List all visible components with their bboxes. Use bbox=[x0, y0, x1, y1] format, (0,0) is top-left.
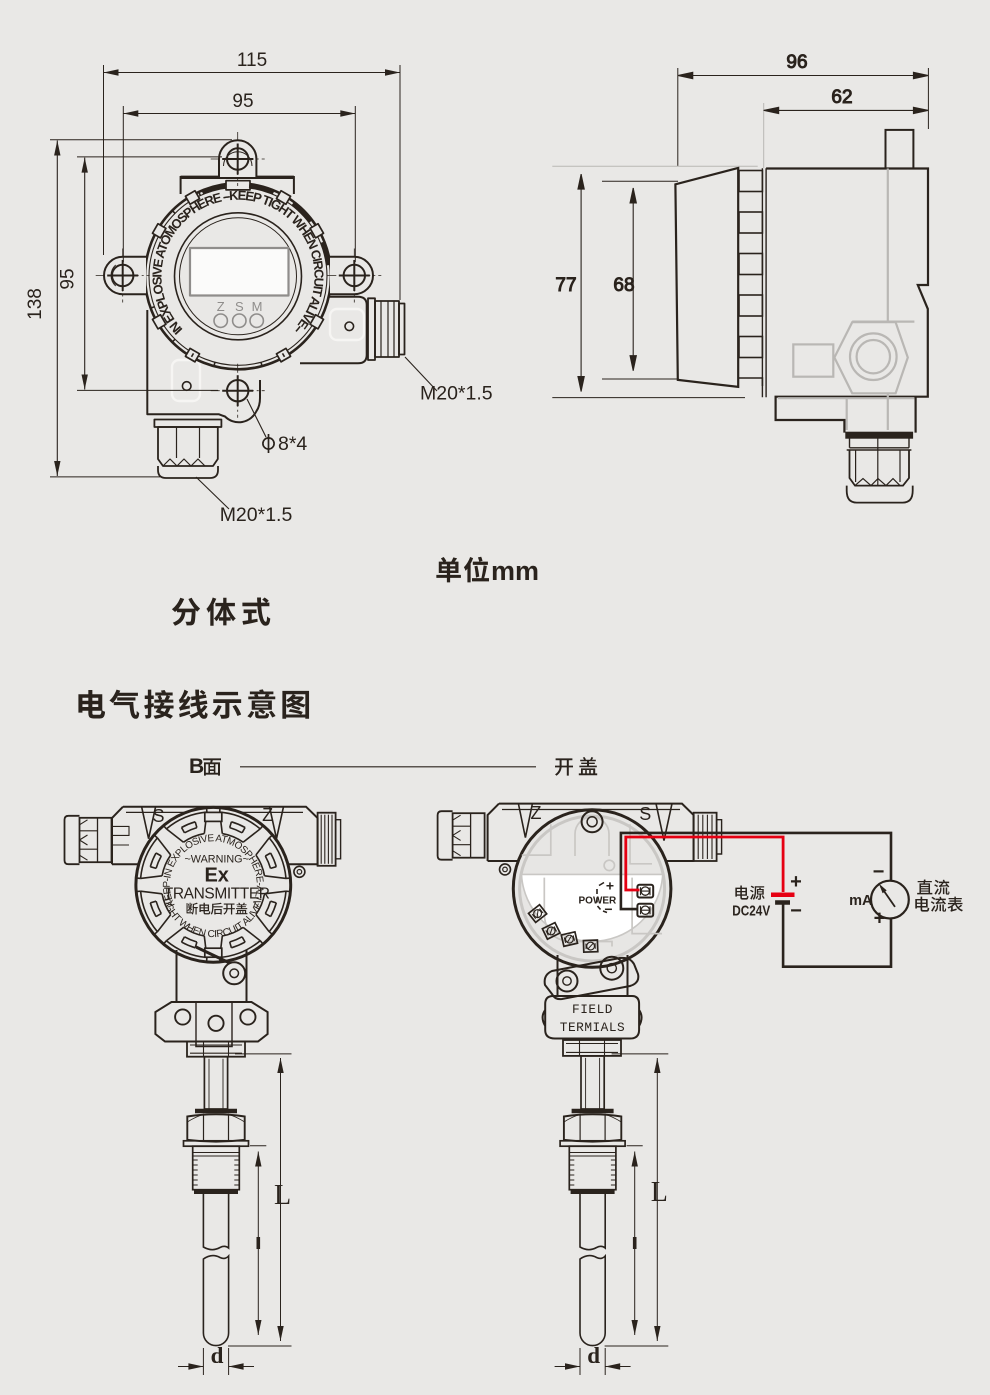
svg-text:95: 95 bbox=[232, 91, 253, 112]
svg-text:L: L bbox=[274, 1180, 291, 1211]
svg-text:d: d bbox=[211, 1343, 224, 1368]
svg-text:62: 62 bbox=[831, 87, 852, 108]
svg-text:L: L bbox=[651, 1177, 668, 1208]
svg-text:mm: mm bbox=[491, 556, 539, 586]
svg-text:96: 96 bbox=[786, 52, 807, 73]
svg-text:B: B bbox=[189, 755, 204, 778]
svg-text:68: 68 bbox=[613, 275, 634, 296]
svg-text:d: d bbox=[587, 1343, 600, 1368]
svg-text:−: − bbox=[790, 900, 802, 922]
svg-text:+: + bbox=[606, 878, 614, 894]
svg-text:S: S bbox=[235, 299, 244, 314]
svg-text:Z: Z bbox=[262, 805, 273, 825]
svg-text:mA: mA bbox=[849, 893, 873, 909]
svg-text:+: + bbox=[874, 908, 886, 930]
svg-text:DC24V: DC24V bbox=[732, 903, 770, 920]
svg-text:Z: Z bbox=[217, 299, 225, 314]
svg-text:115: 115 bbox=[237, 50, 267, 71]
svg-text:TRANSMITTER: TRANSMITTER bbox=[164, 886, 270, 903]
svg-text:M: M bbox=[252, 299, 263, 314]
svg-text:−: − bbox=[873, 861, 885, 883]
svg-text:FIELD: FIELD bbox=[572, 1002, 613, 1017]
svg-text:−: − bbox=[604, 901, 612, 917]
svg-text:Ex: Ex bbox=[204, 865, 228, 887]
svg-text:95: 95 bbox=[58, 268, 79, 289]
svg-text:TERMIALS: TERMIALS bbox=[560, 1020, 625, 1035]
svg-text:+: + bbox=[790, 871, 802, 893]
svg-text:M20*1.5: M20*1.5 bbox=[220, 504, 293, 526]
svg-text:S: S bbox=[639, 804, 651, 824]
svg-text:Z: Z bbox=[531, 803, 542, 823]
svg-text:77: 77 bbox=[555, 275, 576, 296]
svg-text:M20*1.5: M20*1.5 bbox=[420, 383, 493, 405]
svg-text:138: 138 bbox=[25, 288, 46, 320]
svg-text:S: S bbox=[152, 806, 164, 826]
svg-text:8*4: 8*4 bbox=[278, 433, 307, 455]
